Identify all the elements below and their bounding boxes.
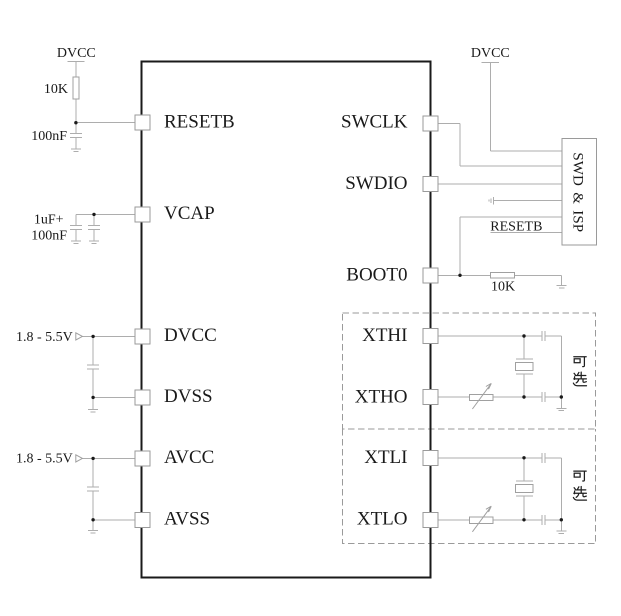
svg-text:RESETB: RESETB xyxy=(164,112,235,133)
svg-text:1.8 - 5.5V: 1.8 - 5.5V xyxy=(16,330,73,345)
svg-text:RESETB: RESETB xyxy=(490,220,542,235)
svg-text:100nF: 100nF xyxy=(31,229,67,244)
svg-text:DVCC: DVCC xyxy=(57,46,96,61)
svg-text:SWCLK: SWCLK xyxy=(341,112,408,133)
svg-text:SWDIO: SWDIO xyxy=(345,173,407,194)
svg-text:VCAP: VCAP xyxy=(164,203,215,224)
svg-text:XTHI: XTHI xyxy=(362,325,407,346)
svg-text:DVCC: DVCC xyxy=(471,46,510,61)
svg-text:XTLO: XTLO xyxy=(357,509,408,530)
svg-text:SWD & ISP: SWD & ISP xyxy=(569,152,585,232)
svg-text:10K: 10K xyxy=(44,82,68,97)
svg-text:AVSS: AVSS xyxy=(164,509,210,530)
svg-text:1uF+: 1uF+ xyxy=(34,213,64,228)
svg-text:XTLI: XTLI xyxy=(364,447,407,468)
svg-text:10K: 10K xyxy=(491,280,515,295)
svg-text:XTHO: XTHO xyxy=(355,386,408,407)
svg-text:AVCC: AVCC xyxy=(164,447,214,468)
svg-text:100nF: 100nF xyxy=(31,129,67,144)
svg-text:1.8 - 5.5V: 1.8 - 5.5V xyxy=(16,451,73,466)
svg-text:DVSS: DVSS xyxy=(164,386,213,407)
svg-text:DVCC: DVCC xyxy=(164,325,217,346)
svg-text:BOOT0: BOOT0 xyxy=(346,264,407,285)
